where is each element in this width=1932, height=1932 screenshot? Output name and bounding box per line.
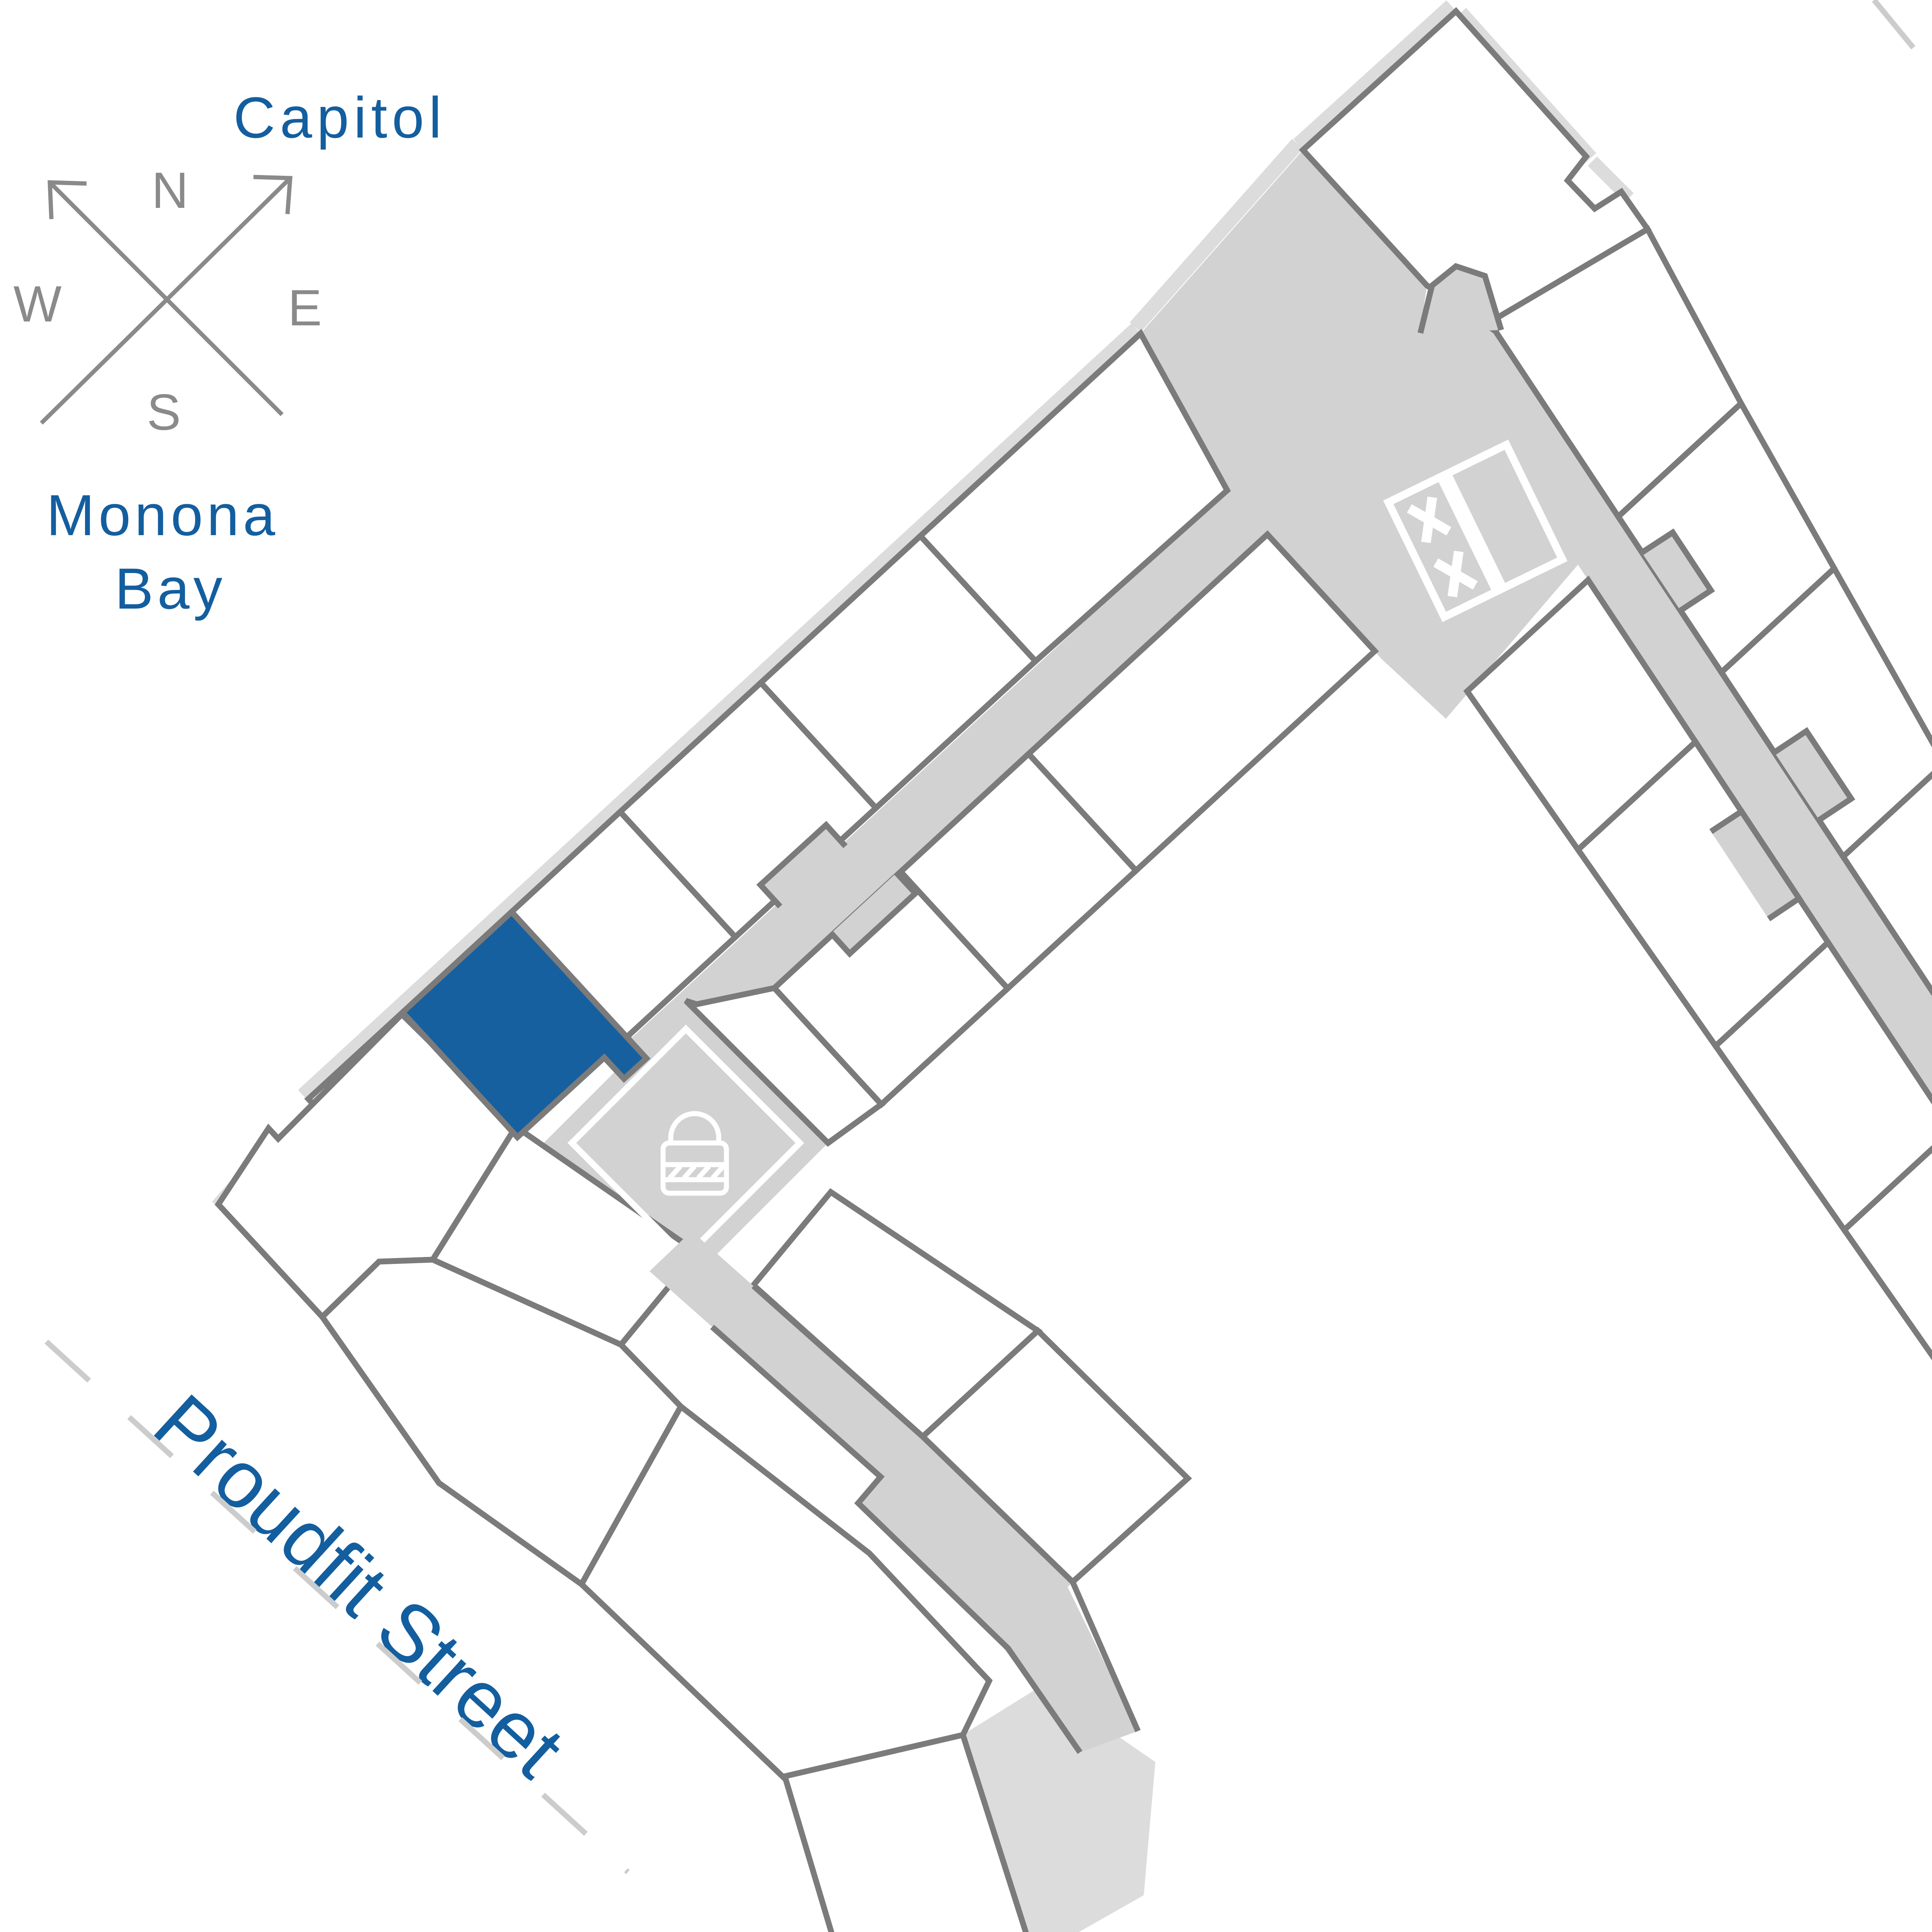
svg-text:E: E bbox=[288, 279, 322, 336]
svg-text:Monona: Monona bbox=[46, 483, 279, 548]
svg-text:N: N bbox=[151, 162, 188, 219]
svg-text:W: W bbox=[14, 276, 62, 332]
svg-text:Capitol: Capitol bbox=[233, 85, 446, 150]
svg-text:North Shore Drive: North Shore Drive bbox=[1930, 1918, 1932, 1932]
svg-text:Bay: Bay bbox=[115, 556, 226, 621]
svg-text:S: S bbox=[147, 384, 181, 440]
